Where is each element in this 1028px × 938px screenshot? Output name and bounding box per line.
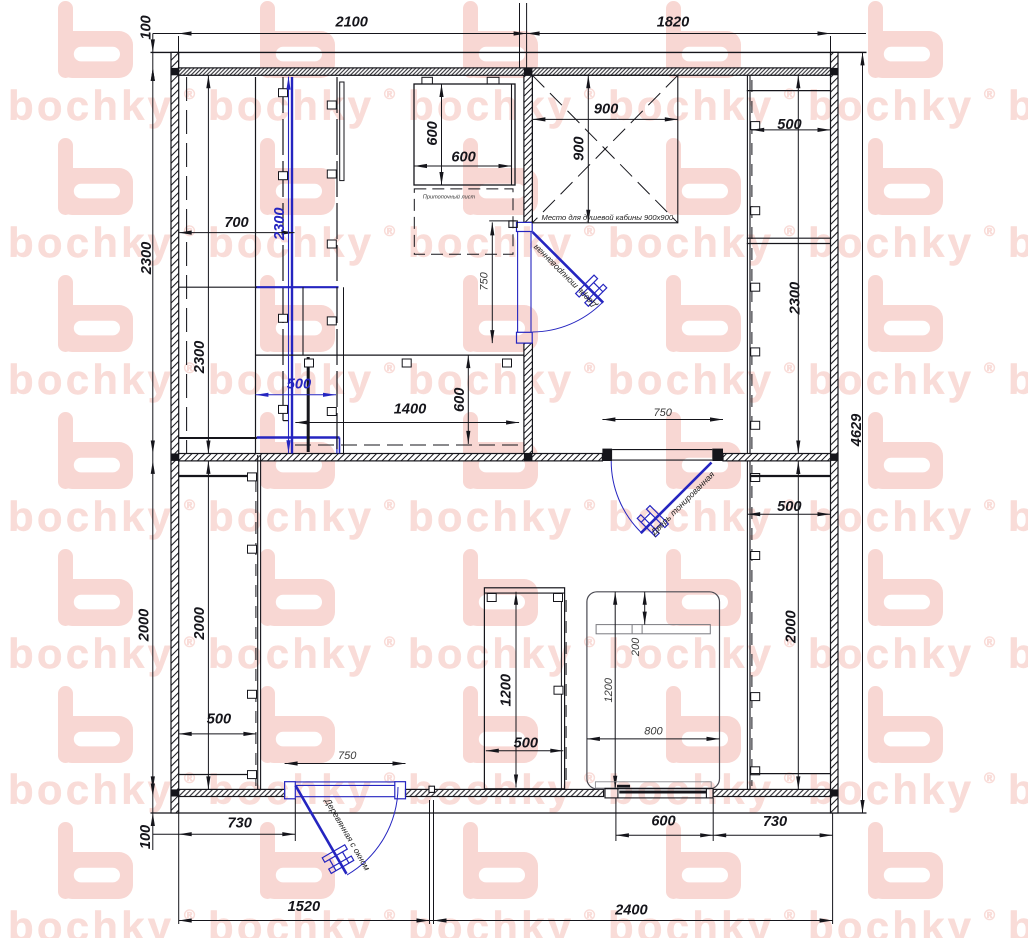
svg-text:2000: 2000 (137, 609, 153, 642)
svg-text:2000: 2000 (783, 610, 799, 643)
svg-text:1400: 1400 (394, 402, 426, 418)
svg-text:1820: 1820 (657, 15, 689, 31)
svg-text:2000: 2000 (192, 607, 208, 640)
svg-text:100: 100 (138, 825, 154, 849)
svg-text:500: 500 (514, 736, 538, 752)
svg-text:750: 750 (479, 271, 491, 290)
svg-text:900: 900 (571, 137, 587, 161)
svg-text:2300: 2300 (192, 341, 208, 374)
svg-text:600: 600 (425, 121, 441, 145)
svg-text:730: 730 (228, 815, 252, 831)
svg-text:600: 600 (451, 150, 475, 166)
svg-text:900: 900 (594, 102, 618, 118)
svg-text:500: 500 (287, 376, 311, 392)
svg-text:800: 800 (644, 725, 663, 737)
svg-text:100: 100 (139, 15, 155, 39)
svg-text:2400: 2400 (614, 903, 647, 919)
svg-text:500: 500 (207, 712, 231, 728)
svg-text:2300: 2300 (139, 242, 155, 275)
svg-text:200: 200 (630, 637, 642, 657)
svg-text:2100: 2100 (334, 15, 367, 31)
svg-text:750: 750 (654, 407, 673, 419)
svg-text:Притопочный лист: Притопочный лист (423, 193, 476, 200)
svg-text:1200: 1200 (603, 677, 615, 702)
svg-text:600: 600 (651, 813, 675, 829)
svg-text:2300: 2300 (788, 282, 804, 315)
svg-text:1520: 1520 (288, 899, 320, 915)
svg-text:2300: 2300 (272, 208, 288, 241)
svg-text:730: 730 (763, 814, 787, 830)
svg-text:700: 700 (224, 215, 248, 231)
svg-text:1200: 1200 (499, 674, 515, 706)
svg-text:750: 750 (338, 750, 357, 762)
svg-text:4629: 4629 (849, 413, 865, 447)
svg-text:600: 600 (452, 388, 468, 412)
svg-text:Место для душевой кабины 900х9: Место для душевой кабины 900х900 (542, 213, 674, 222)
